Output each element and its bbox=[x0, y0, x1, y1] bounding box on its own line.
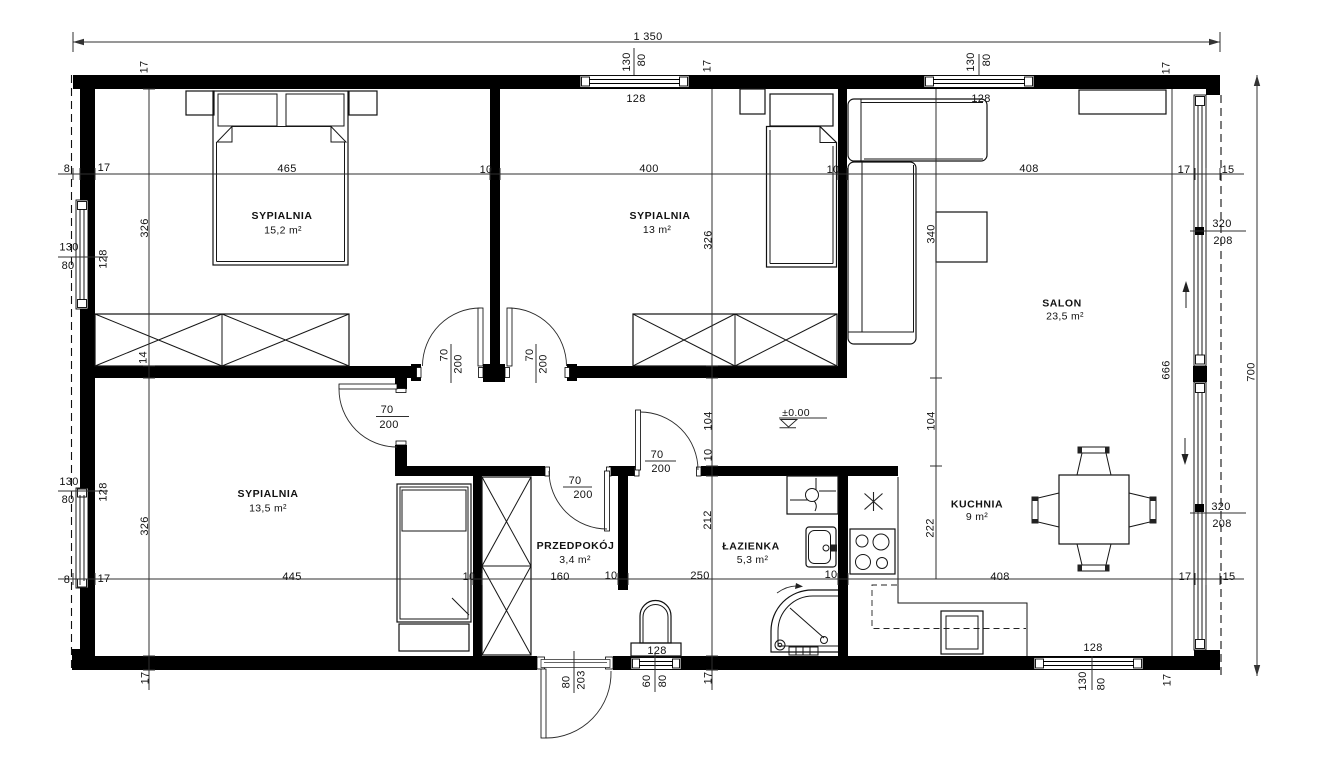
svg-text:222: 222 bbox=[925, 518, 937, 537]
svg-text:80: 80 bbox=[561, 676, 573, 689]
svg-text:340: 340 bbox=[926, 224, 938, 243]
svg-text:250: 250 bbox=[690, 570, 709, 582]
svg-text:320: 320 bbox=[1211, 501, 1230, 513]
svg-text:ŁAZIENKA: ŁAZIENKA bbox=[722, 541, 779, 553]
svg-text:700: 700 bbox=[1246, 362, 1258, 381]
svg-text:KUCHNIA: KUCHNIA bbox=[951, 499, 1003, 511]
svg-text:70: 70 bbox=[651, 449, 664, 461]
svg-text:130: 130 bbox=[965, 52, 977, 71]
svg-text:±0.00: ±0.00 bbox=[782, 407, 810, 419]
svg-text:8: 8 bbox=[64, 574, 70, 586]
svg-text:104: 104 bbox=[703, 411, 715, 430]
svg-text:15: 15 bbox=[1223, 571, 1236, 583]
svg-text:15,2 m²: 15,2 m² bbox=[264, 225, 302, 237]
svg-text:17: 17 bbox=[702, 60, 714, 73]
svg-text:17: 17 bbox=[1178, 164, 1191, 176]
svg-text:10: 10 bbox=[827, 164, 840, 176]
svg-text:9 m²: 9 m² bbox=[966, 511, 988, 523]
svg-text:408: 408 bbox=[1019, 163, 1038, 175]
svg-text:128: 128 bbox=[1083, 642, 1102, 654]
svg-text:408: 408 bbox=[990, 571, 1009, 583]
svg-text:10: 10 bbox=[463, 571, 476, 583]
svg-text:326: 326 bbox=[703, 230, 715, 249]
svg-text:70: 70 bbox=[524, 349, 536, 362]
svg-text:PRZEDPOKÓJ: PRZEDPOKÓJ bbox=[537, 539, 615, 552]
svg-text:130: 130 bbox=[621, 52, 633, 71]
svg-text:212: 212 bbox=[702, 510, 714, 529]
svg-text:60: 60 bbox=[641, 675, 653, 688]
svg-text:80: 80 bbox=[657, 675, 669, 688]
svg-text:208: 208 bbox=[1212, 518, 1231, 530]
svg-text:80: 80 bbox=[1096, 678, 1108, 691]
svg-text:465: 465 bbox=[277, 163, 296, 175]
svg-text:400: 400 bbox=[639, 163, 658, 175]
svg-text:23,5 m²: 23,5 m² bbox=[1046, 311, 1084, 323]
svg-text:326: 326 bbox=[139, 218, 151, 237]
svg-text:128: 128 bbox=[971, 93, 990, 105]
svg-text:128: 128 bbox=[647, 645, 666, 657]
svg-text:70: 70 bbox=[381, 404, 394, 416]
svg-text:SYPIALNIA: SYPIALNIA bbox=[630, 210, 691, 222]
svg-text:SYPIALNIA: SYPIALNIA bbox=[238, 488, 299, 500]
svg-text:17: 17 bbox=[139, 61, 151, 74]
svg-text:130: 130 bbox=[1077, 671, 1089, 690]
svg-text:130: 130 bbox=[59, 242, 78, 254]
svg-text:200: 200 bbox=[379, 419, 398, 431]
svg-text:SALON: SALON bbox=[1042, 298, 1082, 310]
svg-text:666: 666 bbox=[1161, 360, 1173, 379]
svg-text:326: 326 bbox=[139, 516, 151, 535]
svg-text:13,5 m²: 13,5 m² bbox=[249, 503, 287, 515]
svg-text:5,3 m²: 5,3 m² bbox=[737, 554, 769, 566]
svg-text:80: 80 bbox=[62, 260, 75, 272]
svg-text:10: 10 bbox=[703, 449, 715, 462]
svg-text:70: 70 bbox=[439, 349, 451, 362]
svg-text:208: 208 bbox=[1213, 235, 1232, 247]
svg-text:15: 15 bbox=[1222, 164, 1235, 176]
svg-text:17: 17 bbox=[1161, 62, 1173, 75]
svg-text:17: 17 bbox=[1179, 571, 1192, 583]
svg-text:17: 17 bbox=[1162, 674, 1174, 687]
svg-text:3,4 m²: 3,4 m² bbox=[559, 554, 591, 566]
svg-text:200: 200 bbox=[453, 354, 465, 373]
svg-text:17: 17 bbox=[140, 672, 152, 685]
svg-text:8: 8 bbox=[64, 163, 70, 175]
svg-text:128: 128 bbox=[98, 482, 110, 501]
svg-text:104: 104 bbox=[926, 411, 938, 430]
svg-text:10: 10 bbox=[825, 569, 838, 581]
svg-text:13 m²: 13 m² bbox=[643, 224, 672, 236]
svg-text:17: 17 bbox=[98, 573, 111, 585]
svg-text:17: 17 bbox=[98, 162, 111, 174]
svg-text:10: 10 bbox=[605, 570, 618, 582]
svg-text:200: 200 bbox=[573, 489, 592, 501]
svg-text:17: 17 bbox=[703, 672, 715, 685]
svg-text:200: 200 bbox=[538, 354, 550, 373]
svg-text:SYPIALNIA: SYPIALNIA bbox=[252, 210, 313, 222]
svg-text:130: 130 bbox=[59, 476, 78, 488]
svg-text:160: 160 bbox=[550, 571, 569, 583]
svg-text:10: 10 bbox=[480, 164, 493, 176]
svg-text:80: 80 bbox=[636, 54, 648, 67]
svg-text:128: 128 bbox=[626, 93, 645, 105]
svg-text:128: 128 bbox=[98, 249, 110, 268]
svg-text:203: 203 bbox=[576, 670, 588, 689]
svg-text:80: 80 bbox=[981, 54, 993, 67]
svg-text:70: 70 bbox=[569, 475, 582, 487]
svg-text:445: 445 bbox=[282, 571, 301, 583]
svg-text:320: 320 bbox=[1212, 218, 1231, 230]
svg-text:200: 200 bbox=[651, 463, 670, 475]
svg-text:14: 14 bbox=[138, 351, 150, 364]
svg-text:80: 80 bbox=[62, 494, 75, 506]
svg-text:1 350: 1 350 bbox=[633, 31, 662, 43]
